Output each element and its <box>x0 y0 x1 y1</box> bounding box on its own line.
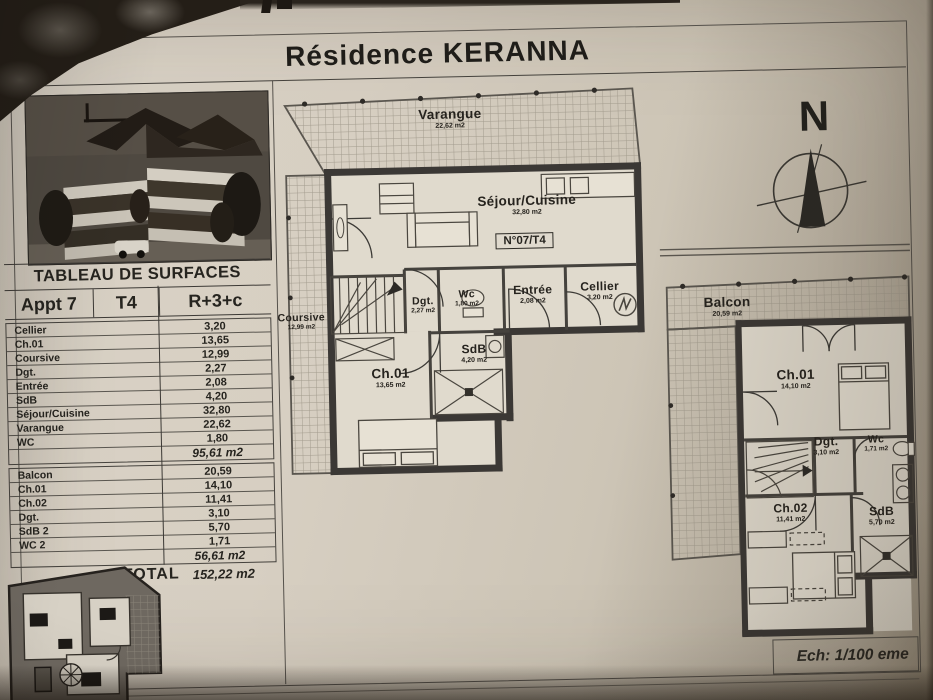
room-label-wc: Wc 1,80 m2 <box>455 288 479 308</box>
surface-table: TABLEAU DE SURFACES Appt 7 T4 R+3+c Cell… <box>4 258 277 588</box>
room-label-dgt: Dgt. 2,27 m2 <box>411 295 435 315</box>
mini-location-plan <box>6 552 205 700</box>
room-label-cellier: Cellier 3,20 m2 <box>580 280 619 303</box>
document-title: Résidence KERANNA <box>285 34 590 73</box>
room-label-balcon: Balcon 20,59 m2 <box>703 294 750 319</box>
north-compass: N <box>747 97 874 240</box>
north-label: N <box>798 92 829 141</box>
room-label-ch01: Ch.01 13,65 m2 <box>371 366 410 390</box>
room-label-coursive: Coursive 12,99 m2 <box>277 311 325 332</box>
surface-table-level1: Cellier3,20 Ch.0113,65 Coursive12,99 Dgt… <box>5 317 274 465</box>
room-label-ch02: Ch.02 11,41 m2 <box>773 502 808 525</box>
cropped-text-fragment <box>277 0 292 9</box>
document-content: Résidence KERANNA <box>0 0 933 700</box>
compass-rose-icon <box>748 141 874 240</box>
room-label-sejour: Séjour/Cuisine 32,80 m2 <box>477 192 576 218</box>
room-label-sdb: SdB 4,20 m2 <box>461 343 487 365</box>
building-render-graphic <box>25 91 271 264</box>
mini-plan-graphic <box>6 552 205 700</box>
room-label-upper-wc: Wc 1,71 m2 <box>864 433 888 453</box>
room-label-varangue: Varangue 22,62 m2 <box>418 106 482 131</box>
scale-label: Ech: 1/100 eme <box>797 645 909 665</box>
room-label-entree: Entrée 2,08 m2 <box>513 283 553 306</box>
level1-subtotal: 95,61 m2 <box>162 444 273 460</box>
header-apartment: Appt 7 <box>5 293 93 316</box>
unit-number-box: N°07/T4 <box>495 232 554 249</box>
scale-box: Ech: 1/100 eme <box>772 636 919 674</box>
upper-floor-plan-graphic <box>658 240 933 650</box>
surface-table-header: Appt 7 T4 R+3+c <box>5 285 272 320</box>
building-photo <box>24 90 272 265</box>
header-type: T4 <box>93 288 161 317</box>
upper-floor-plan: Balcon 20,59 m2 Ch.01 14,10 m2 Dgt. 3,10… <box>658 240 933 650</box>
room-label-upper-ch01: Ch.01 14,10 m2 <box>776 367 815 391</box>
photographed-document: Résidence KERANNA <box>0 0 933 700</box>
main-floor-plan: Varangue 22,62 m2 Séjour/Cuisine 32,80 m… <box>272 80 671 508</box>
header-level: R+3+c <box>160 289 271 312</box>
room-label-upper-dgt: Dgt. 3,10 m2 <box>813 435 839 457</box>
cropped-text-fragment <box>261 0 272 13</box>
room-label-upper-sdb: SdB 5,70 m2 <box>869 505 895 527</box>
